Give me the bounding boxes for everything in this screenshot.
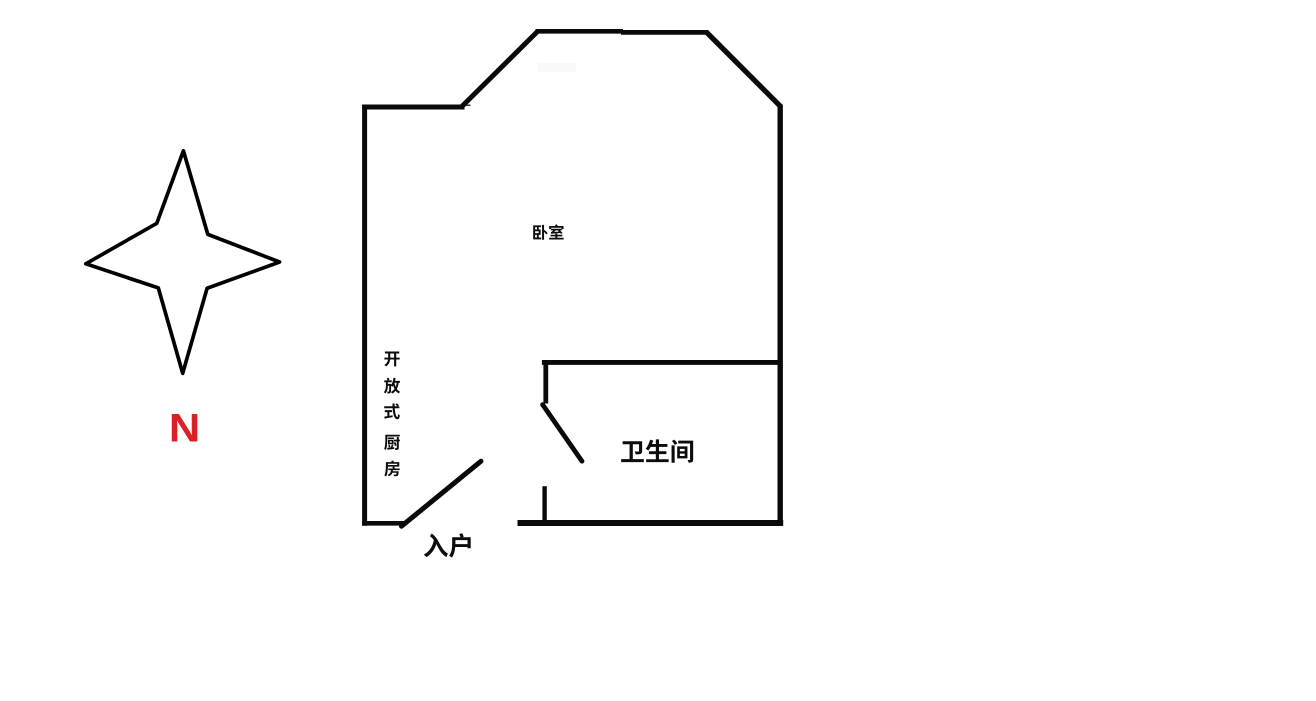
svg-text:N: N [169,405,200,450]
